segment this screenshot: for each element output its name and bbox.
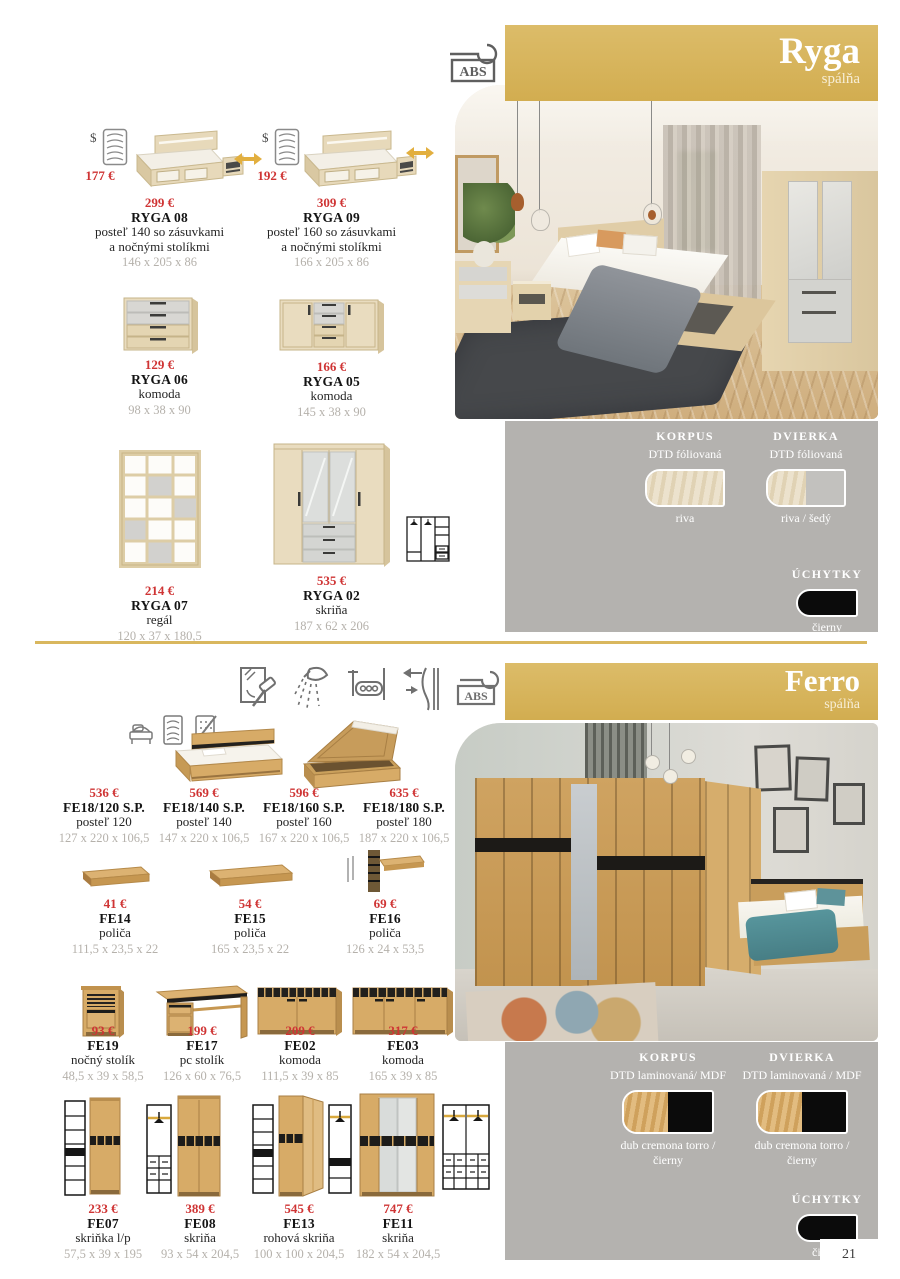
product-dims: 126 x 60 x 76,5 xyxy=(150,1069,254,1083)
abs-label: ABS xyxy=(464,689,488,703)
product-desc: posteľ 160 so zásuvkami xyxy=(234,225,429,239)
product-desc: a nočnými stolíkmi xyxy=(234,240,429,254)
product-code: FE02 xyxy=(248,1038,352,1053)
product-code: FE19 xyxy=(51,1038,155,1053)
product-price: 635 € xyxy=(352,786,456,800)
wall-picture xyxy=(754,744,792,791)
product-desc: poliča xyxy=(333,926,437,940)
product-price: 93 € xyxy=(51,1024,155,1038)
nightstand xyxy=(513,281,551,320)
rollout-icon xyxy=(346,664,388,712)
product-code: FE14 xyxy=(63,911,167,926)
product-price: 166 € xyxy=(234,360,429,374)
product-card-fe15: 54 € FE15 poliča 165 x 23,5 x 22 xyxy=(198,897,302,956)
wardrobe-wall xyxy=(475,778,705,986)
wall-picture xyxy=(833,783,865,825)
product-code: FE13 xyxy=(247,1216,351,1231)
product-desc: posteľ 180 xyxy=(352,815,456,829)
pendant-lamp xyxy=(681,749,696,764)
product-card-fe18-120: 536 € FE18/120 S.P. posteľ 120 127 x 220… xyxy=(52,786,156,845)
pendant-lamp xyxy=(531,209,550,231)
wall-picture xyxy=(773,807,809,853)
pendant-lamp xyxy=(511,193,524,211)
product-price: 309 € xyxy=(234,196,429,210)
product-price: 41 € xyxy=(63,897,167,911)
wardrobe-interior-icon xyxy=(328,1104,352,1194)
product-card-fe17: 199 € FE17 pc stolík 126 x 60 x 76,5 xyxy=(150,1024,254,1083)
ferro-room-photo xyxy=(455,723,878,1041)
product-card-fe16: 69 € FE16 poliča 126 x 24 x 53,5 xyxy=(333,897,437,956)
product-card-ryga-09: $ 192 € 309 € RYGA 09 xyxy=(234,128,429,269)
wardrobe-image-fe11 xyxy=(358,1090,436,1202)
product-code: FE18/160 S.P. xyxy=(252,800,356,815)
product-dims: 147 x 220 x 106,5 xyxy=(152,831,256,845)
pendant-lamp xyxy=(645,755,660,770)
light-icon xyxy=(292,664,334,712)
wardrobe-interior-icon xyxy=(406,516,450,562)
product-desc: skriňa xyxy=(234,603,429,617)
dvierka-swatch-label-2: čierny xyxy=(702,1153,900,1168)
product-code: FE11 xyxy=(346,1216,450,1231)
product-dims: 111,5 x 39 x 85 xyxy=(248,1069,352,1083)
product-dims: 165 x 39 x 85 xyxy=(351,1069,455,1083)
product-card-fe14: 41 € FE14 poliča 111,5 x 23,5 x 22 xyxy=(63,897,167,956)
wardrobe-interior-icon xyxy=(442,1104,490,1190)
page-number: 21 xyxy=(820,1239,878,1271)
product-dims: 166 x 205 x 86 xyxy=(234,255,429,269)
dvierka-material: DVIERKA DTD fóliovaná riva / šedý xyxy=(726,429,886,526)
dvierka-swatch xyxy=(756,1090,848,1134)
product-code: FE17 xyxy=(150,1038,254,1053)
product-price: 199 € xyxy=(150,1024,254,1038)
dollar-icon: $ xyxy=(90,130,97,146)
section-title: Ferro xyxy=(505,665,860,697)
wardrobe xyxy=(762,171,878,371)
dresser xyxy=(455,261,511,333)
product-price: 129 € xyxy=(62,358,257,372)
blanket xyxy=(745,908,839,961)
plant xyxy=(463,183,515,247)
korpus-swatch xyxy=(622,1090,714,1134)
pillow xyxy=(596,230,626,250)
product-price: 317 € xyxy=(351,1024,455,1038)
product-desc: nočný stolík xyxy=(51,1053,155,1067)
dvierka-heading: DVIERKA xyxy=(726,429,886,444)
product-code: FE03 xyxy=(351,1038,455,1053)
product-desc: a nočnými stolíkmi xyxy=(62,240,257,254)
product-code: RYGA 08 xyxy=(62,210,257,225)
dvierka-swatch-label-1: dub cremona torro / xyxy=(702,1138,900,1153)
product-dims: 126 x 24 x 53,5 xyxy=(333,942,437,956)
product-desc: posteľ 160 xyxy=(252,815,356,829)
section-divider xyxy=(35,641,867,644)
shelf-image-fe15 xyxy=(206,862,294,890)
abs-edge-icon: ABS xyxy=(454,664,500,712)
product-card-fe02: 209 € FE02 komoda 111,5 x 39 x 85 xyxy=(248,1024,352,1083)
pillow xyxy=(784,889,818,911)
bed-image xyxy=(123,130,245,192)
wardrobe-image-fe07 xyxy=(88,1094,122,1200)
product-dims: 187 x 62 x 206 xyxy=(234,619,429,633)
wardrobe-interior-icon xyxy=(252,1104,274,1194)
uchytky-heading: ÚCHYTKY xyxy=(757,1192,897,1207)
uchytky-material: ÚCHYTKY čierny plastové xyxy=(757,567,897,650)
ferro-materials-panel: KORPUS DTD laminovaná/ MDF dub cremona t… xyxy=(505,1042,878,1260)
dvierka-material: DVIERKA DTD laminovaná / MDF dub cremona… xyxy=(702,1050,900,1168)
dvierka-material-type: DTD laminovaná / MDF xyxy=(702,1068,900,1083)
dvierka-heading: DVIERKA xyxy=(702,1050,900,1065)
shelf-image-fe16 xyxy=(344,848,426,896)
wardrobe-image-fe08 xyxy=(176,1092,222,1202)
section-title: Ryga xyxy=(505,33,860,71)
product-card-fe08: 389 € FE08 skriňa 93 x 54 x 204,5 xyxy=(148,1202,252,1261)
corner-wardrobe-image-fe13 xyxy=(277,1090,325,1202)
rug xyxy=(466,982,659,1041)
product-dims: 93 x 54 x 204,5 xyxy=(148,1247,252,1261)
product-desc: skriňka l/p xyxy=(51,1231,155,1245)
regal-image xyxy=(119,450,201,568)
product-dims: 165 x 23,5 x 22 xyxy=(198,942,302,956)
shelf-image-fe14 xyxy=(79,864,151,890)
komoda-image xyxy=(120,294,200,354)
product-dims: 167 x 220 x 106,5 xyxy=(252,831,356,845)
product-code: RYGA 09 xyxy=(234,210,429,225)
product-price: 747 € xyxy=(346,1202,450,1216)
product-price: 299 € xyxy=(62,196,257,210)
product-desc: komoda xyxy=(62,387,257,401)
vase xyxy=(473,241,495,267)
product-desc: posteľ 120 xyxy=(52,815,156,829)
product-desc: komoda xyxy=(248,1053,352,1067)
product-code: FE15 xyxy=(198,911,302,926)
product-dims: 182 x 54 x 204,5 xyxy=(346,1247,450,1261)
uchytky-heading: ÚCHYTKY xyxy=(757,567,897,582)
product-price: 214 € xyxy=(62,584,257,598)
product-desc: skriňa xyxy=(346,1231,450,1245)
catalog-page: ABS Ryga spálňa xyxy=(0,0,900,1279)
product-dims: 48,5 x 39 x 58,5 xyxy=(51,1069,155,1083)
wardrobe-interior-icon xyxy=(64,1100,86,1196)
section-subtitle: spálňa xyxy=(505,697,860,712)
product-dims: 100 x 100 x 204,5 xyxy=(247,1247,351,1261)
ferro-bed-open-image xyxy=(296,718,406,794)
product-card-ryga-05: 166 € RYGA 05 komoda 145 x 38 x 90 xyxy=(234,294,429,419)
product-code: FE18/120 S.P. xyxy=(52,800,156,815)
product-card-ryga-07: 214 € RYGA 07 regál 120 x 37 x 180,5 xyxy=(62,438,257,643)
komoda-image xyxy=(278,296,386,354)
skrina-image xyxy=(272,440,392,570)
product-dims: 187 x 220 x 106,5 xyxy=(352,831,456,845)
product-card-fe18-180: 635 € FE18/180 S.P. posteľ 180 187 x 220… xyxy=(352,786,456,845)
product-desc: posteľ 140 xyxy=(152,815,256,829)
ryga-banner: Ryga spálňa xyxy=(505,25,878,101)
extendable-arrow-icon xyxy=(405,146,435,160)
product-dims: 111,5 x 23,5 x 22 xyxy=(63,942,167,956)
product-desc: rohová skriňa xyxy=(247,1231,351,1245)
product-card-fe07: 233 € FE07 skriňka l/p 57,5 x 39 x 195 xyxy=(51,1202,155,1261)
product-price: 54 € xyxy=(198,897,302,911)
product-code: RYGA 05 xyxy=(234,374,429,389)
product-price: 69 € xyxy=(333,897,437,911)
product-card-fe03: 317 € FE03 komoda 165 x 39 x 85 xyxy=(351,1024,455,1083)
dollar-icon: $ xyxy=(262,130,269,146)
dvierka-material-type: DTD fóliovaná xyxy=(726,447,886,462)
product-code: RYGA 07 xyxy=(62,598,257,613)
abs-edge-icon: ABS xyxy=(444,34,500,86)
product-desc: posteľ 140 so zásuvkami xyxy=(62,225,257,239)
product-code: RYGA 02 xyxy=(234,588,429,603)
product-dims: 145 x 38 x 90 xyxy=(234,405,429,419)
product-code: RYGA 06 xyxy=(62,372,257,387)
glass-hammer-icon xyxy=(238,664,280,712)
product-code: FE18/180 S.P. xyxy=(352,800,456,815)
dvierka-swatch-label: riva / šedý xyxy=(726,511,886,526)
product-card-fe11: 747 € FE11 skriňa 182 x 54 x 204,5 xyxy=(346,1202,450,1261)
product-card-ryga-06: 129 € RYGA 06 komoda 98 x 38 x 90 xyxy=(62,294,257,417)
product-code: FE07 xyxy=(51,1216,155,1231)
ferro-banner: Ferro spálňa xyxy=(505,663,878,720)
uchytky-swatch-black xyxy=(796,589,858,617)
product-desc: poliča xyxy=(63,926,167,940)
product-desc: komoda xyxy=(351,1053,455,1067)
product-code: FE16 xyxy=(333,911,437,926)
product-price: 209 € xyxy=(248,1024,352,1038)
product-desc: pc stolík xyxy=(150,1053,254,1067)
product-price: 569 € xyxy=(152,786,256,800)
product-price: 233 € xyxy=(51,1202,155,1216)
product-price: 389 € xyxy=(148,1202,252,1216)
soft-close-icon xyxy=(400,664,442,712)
product-card-fe13: 545 € FE13 rohová skriňa 100 x 100 x 204… xyxy=(247,1202,351,1261)
ryga-materials-panel: KORPUS DTD fóliovaná riva DVIERKA DTD fó… xyxy=(505,421,878,632)
bed-image xyxy=(295,130,417,192)
storage-bed-icon xyxy=(128,716,154,748)
product-desc: poliča xyxy=(198,926,302,940)
product-dims: 98 x 38 x 90 xyxy=(62,403,257,417)
ryga-room-photo xyxy=(455,85,878,419)
uchytky-swatch-black xyxy=(796,1214,858,1242)
product-price: 535 € xyxy=(234,574,429,588)
dvierka-swatch-riva-sedy xyxy=(766,469,846,507)
product-desc: skriňa xyxy=(148,1231,252,1245)
product-dims: 57,5 x 39 x 195 xyxy=(51,1247,155,1261)
product-card-ryga-02: 535 € RYGA 02 skriňa 187 x 62 x 206 xyxy=(234,438,429,633)
product-dims: 127 x 220 x 106,5 xyxy=(52,831,156,845)
product-code: FE08 xyxy=(148,1216,252,1231)
product-code: FE18/140 S.P. xyxy=(152,800,256,815)
pendant-lamp xyxy=(663,769,678,784)
product-price: 545 € xyxy=(247,1202,351,1216)
korpus-swatch-riva xyxy=(645,469,725,507)
abs-label: ABS xyxy=(459,65,486,80)
ferro-feature-icons: ABS xyxy=(238,664,500,712)
product-desc: komoda xyxy=(234,389,429,403)
product-card-fe19: 93 € FE19 nočný stolík 48,5 x 39 x 58,5 xyxy=(51,1024,155,1083)
product-card-ryga-08: $ 177 € 299 € RYGA 08 xyxy=(62,128,257,269)
product-desc: regál xyxy=(62,613,257,627)
product-dims: 146 x 205 x 86 xyxy=(62,255,257,269)
product-price: 596 € xyxy=(252,786,356,800)
product-card-fe18-140: 569 € FE18/140 S.P. posteľ 140 147 x 220… xyxy=(152,786,256,845)
uchytky-label-1: čierny xyxy=(757,620,897,635)
product-card-fe18-160: 596 € FE18/160 S.P. posteľ 160 167 x 220… xyxy=(252,786,356,845)
wall-picture xyxy=(794,756,830,801)
pillow xyxy=(816,888,845,906)
wardrobe-interior-icon xyxy=(146,1104,172,1194)
section-subtitle: spálňa xyxy=(505,71,860,88)
product-price: 536 € xyxy=(52,786,156,800)
